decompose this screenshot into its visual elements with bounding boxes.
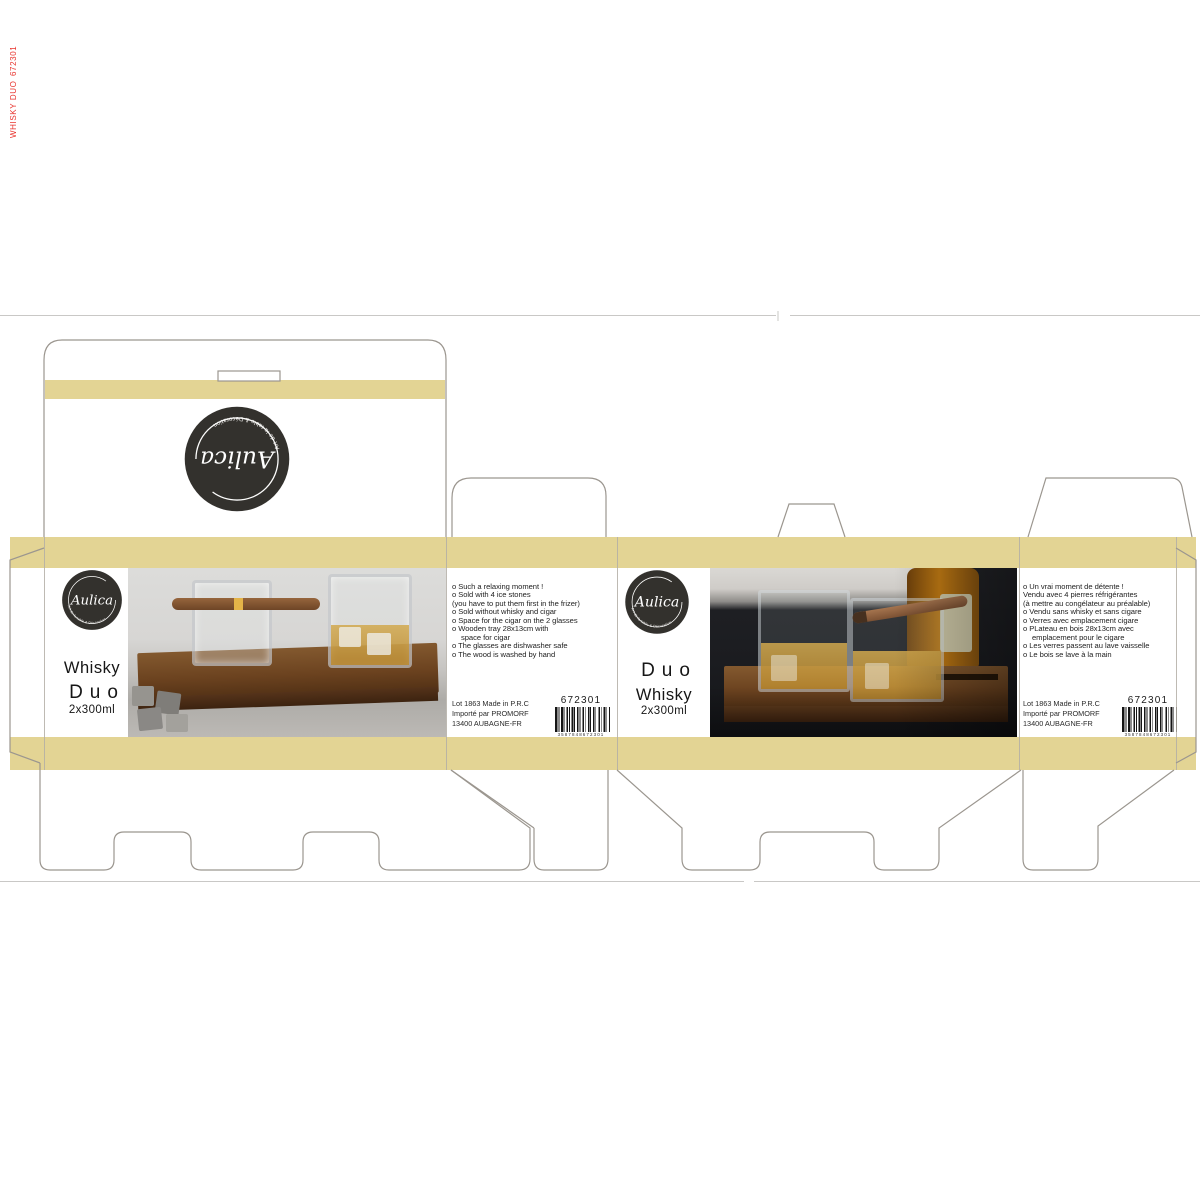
feature-line: o Le bois se lave à la main <box>1023 651 1178 659</box>
whisky-stone <box>132 686 154 706</box>
barcode-fr <box>1122 707 1177 732</box>
front-fr-logo-aulica <box>623 568 691 636</box>
features-list-en: o Such a relaxing moment ! o Sold with 4… <box>452 583 614 659</box>
barcode-digits-fr: 3587848672301 <box>1119 732 1177 737</box>
packaging-dieline-sheet: 672301 WHISKY DUO Whisky Duo 2x300ml o S… <box>0 0 1200 1200</box>
lot-info-en: Lot 1863 Made in P.R.C Importé par PROMO… <box>452 699 529 729</box>
features-list-fr: o Un vrai moment de détente ! Vendu avec… <box>1023 583 1178 659</box>
whisky-stone <box>137 707 163 731</box>
prepress-mark: WHISKY DUO <box>9 81 18 138</box>
glass-right <box>328 574 412 668</box>
sku-number-fr: 672301 <box>1119 695 1177 706</box>
lot-line: Importé par PROMORF <box>452 709 529 719</box>
lid-logo-aulica <box>181 403 293 515</box>
whisky-stone <box>166 714 188 732</box>
lot-line: Lot 1863 Made in P.R.C <box>452 699 529 709</box>
upper-fold-stripe <box>10 537 1196 568</box>
front-fr-title-line1: Duo <box>617 660 716 682</box>
barcode-digits-en: 3587848672301 <box>552 732 610 737</box>
sku-number-en: 672301 <box>552 695 610 706</box>
front-fr-capacity: 2x300ml <box>617 705 711 717</box>
lot-line: 13400 AUBAGNE-FR <box>1023 719 1100 729</box>
barcode-en <box>555 707 610 732</box>
cigar-band <box>234 598 243 610</box>
cigar <box>172 598 320 610</box>
lower-fold-stripe <box>10 737 1196 770</box>
product-photo-dark <box>710 568 1017 737</box>
lot-line: Lot 1863 Made in P.R.C <box>1023 699 1100 709</box>
prepress-mark: 672301 <box>9 46 18 76</box>
ice-cube <box>339 627 361 647</box>
lid-stripe <box>45 380 445 399</box>
front-en-logo-aulica <box>60 568 124 632</box>
front-fr-title-line2: Whisky <box>617 686 711 705</box>
front-en-title-line1: Whisky <box>44 659 140 678</box>
front-en-capacity: 2x300ml <box>44 704 140 716</box>
product-photo-light <box>128 568 446 737</box>
ice-cube <box>367 633 391 655</box>
lot-line: 13400 AUBAGNE-FR <box>452 719 529 729</box>
photo-vignette <box>710 568 1017 737</box>
feature-line: o The wood is washed by hand <box>452 651 614 659</box>
lot-info-fr: Lot 1863 Made in P.R.C Importé par PROMO… <box>1023 699 1100 729</box>
lot-line: Importé par PROMORF <box>1023 709 1100 719</box>
glass-left <box>192 580 272 666</box>
